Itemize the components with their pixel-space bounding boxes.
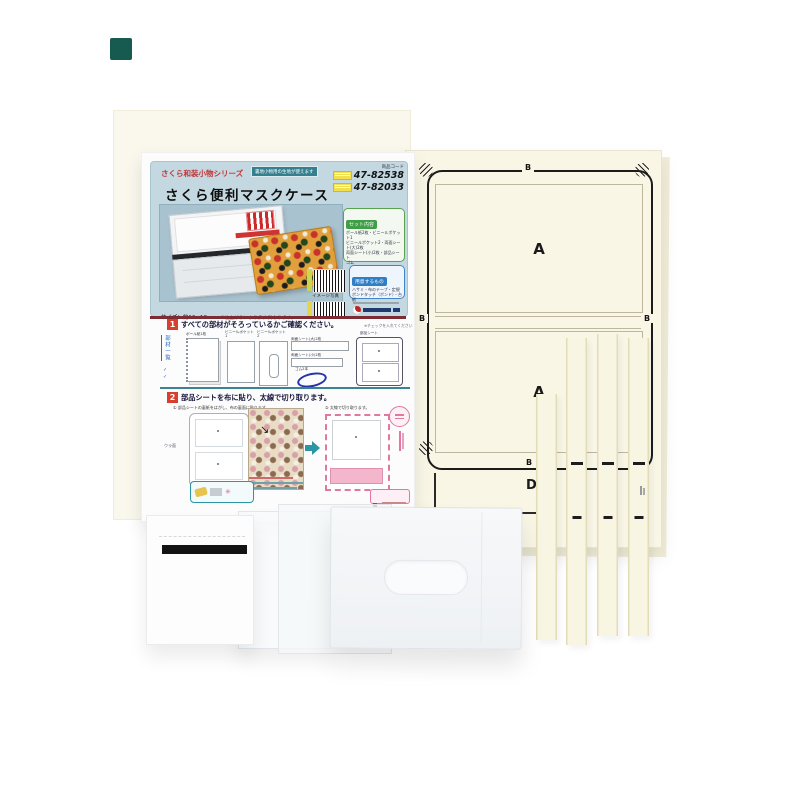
strip-mark bbox=[571, 462, 583, 465]
barcode-tab bbox=[307, 301, 312, 317]
logo-bird-icon bbox=[353, 306, 361, 314]
pattern-label-b-right: B bbox=[641, 314, 653, 323]
sheet-small-diagram bbox=[291, 358, 343, 367]
strip-mark bbox=[603, 516, 612, 519]
logo-text-bar bbox=[363, 308, 391, 312]
product-code-block: 商品コード 47-82538 47-82033 bbox=[333, 164, 404, 193]
step1-number: 1 bbox=[167, 319, 178, 330]
step2-heading: 部品シートを布に貼り、太線で切り取ります。 bbox=[181, 393, 331, 403]
cardboard-piece bbox=[146, 515, 254, 645]
corner-hatch-icon bbox=[635, 163, 649, 177]
photo-caption: イメージ写真 bbox=[312, 293, 339, 299]
oval-slot bbox=[384, 560, 468, 596]
step1-heading: すべての部材がそろっているかご確認ください。 bbox=[181, 320, 338, 330]
tip-gray-shape bbox=[210, 488, 222, 496]
set-contents-line: ビニールポケット2・両面シート(大)2枚 bbox=[346, 240, 402, 250]
side-note-bar bbox=[402, 433, 404, 449]
sparkle-icon: ✳ bbox=[225, 488, 231, 496]
strip-mark bbox=[633, 462, 645, 465]
strip-mark bbox=[572, 516, 581, 519]
fold-line bbox=[481, 512, 483, 644]
maroon-rule bbox=[150, 316, 406, 319]
perforation-line bbox=[159, 536, 245, 537]
cut-piece-cell bbox=[332, 420, 381, 460]
arrow-into-fabric-icon: ↘ bbox=[260, 423, 269, 436]
callout-micro-text bbox=[395, 418, 404, 420]
barcode bbox=[313, 269, 346, 293]
corner-hatch-icon bbox=[419, 163, 433, 177]
parts-outline-diagram bbox=[189, 413, 249, 487]
check-icon: ✓ bbox=[163, 374, 167, 380]
cut-strip bbox=[566, 338, 587, 645]
pattern-label-a-top: A bbox=[533, 240, 545, 258]
parts-list-label: 部材一覧 bbox=[161, 335, 171, 361]
step2-sub2: ② 太線で切り取ります。 bbox=[325, 405, 369, 411]
item-label-board: ボール紙1枚 bbox=[186, 332, 206, 336]
corner-hatch-icon bbox=[419, 441, 433, 455]
center-dot bbox=[378, 370, 380, 372]
sheet-bars-group: 両面シート(大)2枚 両面シート(小)2枚 bbox=[291, 337, 349, 367]
cut-strip bbox=[536, 394, 557, 640]
header-card: さくら和装小物シリーズ 裏地小物用の生地が使えます 商品コード 47-82538… bbox=[150, 161, 408, 317]
usage-badge: 裏地小物用の生地が使えます bbox=[251, 166, 318, 177]
section-divider bbox=[160, 387, 410, 389]
center-dot bbox=[378, 350, 380, 352]
strip-micro-text bbox=[640, 486, 642, 495]
note-line-red bbox=[249, 477, 293, 479]
item-label-parts-sheet: 部品シート bbox=[360, 331, 378, 335]
parts-sheet-cell bbox=[362, 343, 399, 362]
pocket1-diagram bbox=[227, 341, 255, 383]
barcode-tab bbox=[307, 269, 312, 291]
black-strip bbox=[162, 545, 247, 554]
item-label-elastic: ゴム2本 bbox=[295, 367, 308, 371]
parts-sheet-cell bbox=[362, 363, 399, 382]
prepare-title: 用意するもの bbox=[352, 277, 387, 286]
note-line bbox=[249, 482, 303, 484]
strip-micro-text bbox=[643, 488, 645, 495]
step2-number: 2 bbox=[167, 392, 178, 403]
outline-cell bbox=[195, 419, 243, 447]
board-diagram bbox=[186, 338, 219, 382]
product-code: 47-82538 bbox=[354, 170, 404, 181]
product-title: さくら便利マスクケース bbox=[165, 184, 329, 204]
teal-arrow-icon bbox=[305, 441, 321, 455]
callout-micro-text bbox=[395, 414, 404, 416]
center-dot bbox=[217, 430, 219, 432]
logo-micro-text bbox=[353, 302, 399, 304]
point-callout-circle bbox=[389, 406, 410, 427]
step1-side-note: ※チェックを入れてください bbox=[364, 323, 413, 329]
series-label: さくら和装小物シリーズ bbox=[161, 168, 243, 179]
watermark-square bbox=[110, 38, 132, 60]
tip-callout-box: ✳ bbox=[190, 481, 254, 503]
code-tag bbox=[333, 183, 352, 192]
cut-piece-diagram bbox=[325, 414, 390, 491]
product-photo-canvas: B A B B A B D さくら和装小物シリーズ 裏地小 bbox=[0, 0, 800, 800]
pink-callout-box bbox=[370, 489, 410, 504]
pocket2-slot bbox=[269, 354, 279, 378]
pattern-band-line bbox=[435, 316, 641, 317]
center-dot bbox=[217, 463, 219, 465]
outline-cell bbox=[195, 452, 243, 480]
back-side-label: ウラ面 bbox=[164, 443, 176, 449]
prepare-box: 用意するもの ハサミ・布のテープ・定規 ボンドタッチ（ボンド）・台紙 bbox=[349, 265, 405, 299]
instruction-sheet: さくら和装小物シリーズ 裏地小物用の生地が使えます 商品コード 47-82538… bbox=[141, 152, 415, 522]
item-label-pocket2: ビニールポケット2 bbox=[257, 330, 287, 339]
sheet-large-diagram bbox=[291, 341, 349, 351]
prepare-line: ボンドタッチ（ボンド）・台紙 bbox=[352, 292, 402, 302]
pattern-panel-a-top: A bbox=[435, 184, 643, 313]
center-dot bbox=[355, 436, 357, 438]
red-stripe-card bbox=[246, 210, 276, 231]
strip-mark bbox=[634, 516, 643, 519]
cut-strip bbox=[597, 334, 618, 636]
set-contents-line: 両面シート(小)2枚・部品シート bbox=[346, 250, 402, 260]
check-icon: ✓ bbox=[163, 367, 167, 373]
logo-text-bar bbox=[393, 308, 400, 312]
vinyl-case-body bbox=[330, 506, 523, 649]
pattern-band-line bbox=[435, 328, 641, 329]
cut-strip bbox=[628, 338, 649, 636]
code-tag bbox=[333, 171, 352, 180]
pocket2-diagram bbox=[259, 341, 288, 386]
pattern-label-b-top: B bbox=[522, 163, 534, 172]
strip-mark bbox=[602, 462, 614, 465]
pattern-label-b-left: B bbox=[416, 314, 428, 323]
tip-yellow-shape bbox=[194, 487, 208, 498]
set-contents-line: ボール紙2枚・ビニールポケット1 bbox=[346, 230, 402, 240]
maker-logo bbox=[353, 302, 403, 314]
item-label-pocket1: ビニールポケット1 bbox=[225, 330, 255, 339]
set-contents-box: セット内容 ボール紙2枚・ビニールポケット1 ビニールポケット2・両面シート(大… bbox=[343, 208, 405, 262]
pattern-label-b-bottom: B bbox=[523, 458, 535, 467]
pattern-sheet: B A B B A B D bbox=[405, 150, 662, 548]
side-note-bar bbox=[399, 431, 401, 451]
set-contents-title: セット内容 bbox=[346, 220, 377, 229]
product-code: 47-82033 bbox=[354, 182, 404, 193]
cut-piece-pink-strip bbox=[330, 468, 383, 484]
parts-sheet-diagram bbox=[356, 337, 403, 386]
note-line bbox=[249, 487, 297, 489]
